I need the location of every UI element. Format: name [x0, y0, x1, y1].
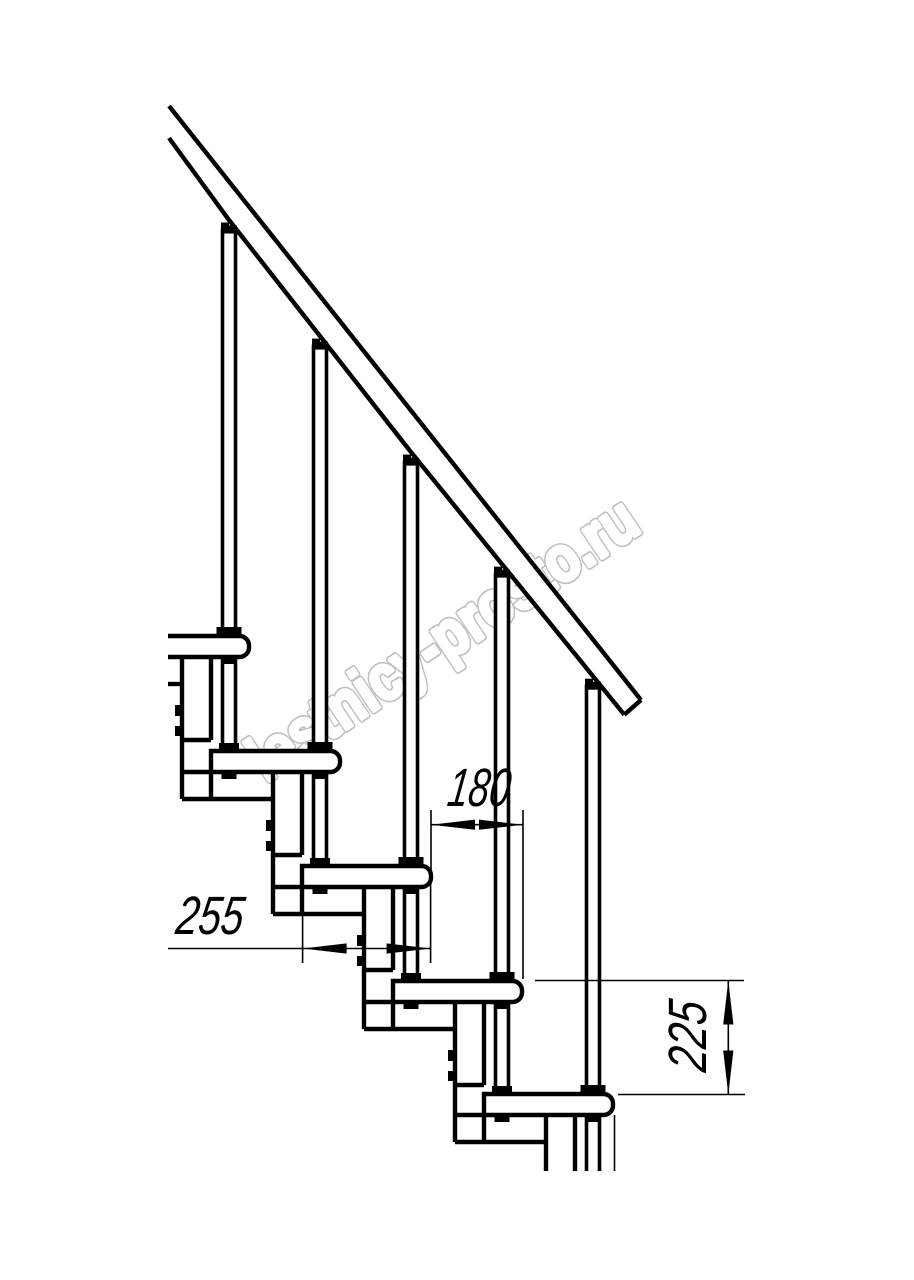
svg-text:180: 180: [444, 758, 514, 818]
svg-text:225: 225: [658, 996, 718, 1076]
svg-text:255: 255: [172, 886, 249, 946]
